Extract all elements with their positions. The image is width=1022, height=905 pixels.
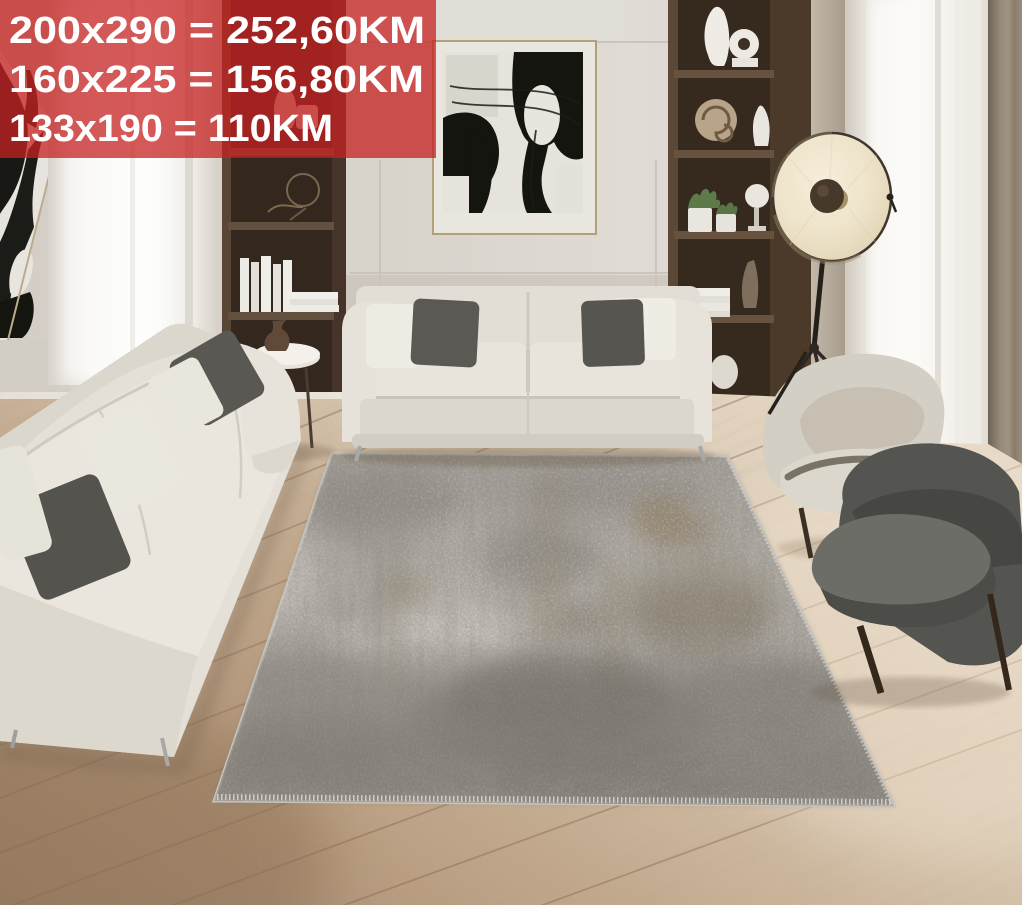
svg-text:160x225 = 156,80KM: 160x225 = 156,80KM (9, 59, 424, 101)
svg-text:133x190 = 110KM: 133x190 = 110KM (9, 108, 333, 150)
svg-text:200x290 = 252,60KM: 200x290 = 252,60KM (9, 10, 425, 52)
